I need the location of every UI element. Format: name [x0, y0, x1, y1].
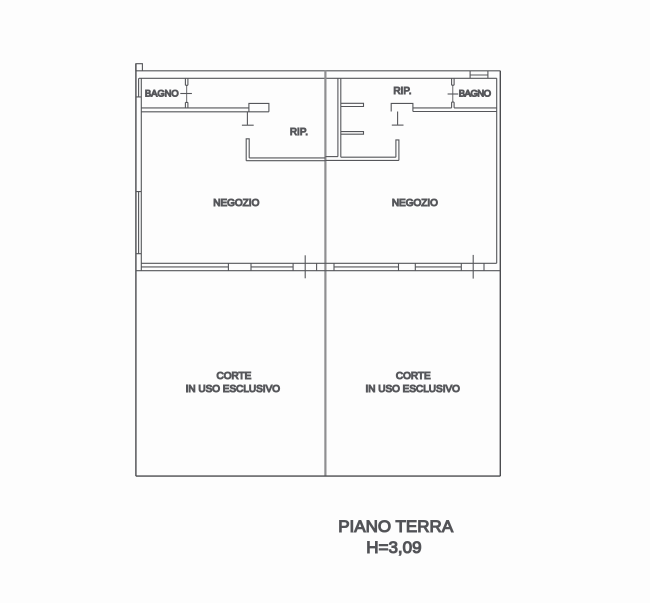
- svg-text:BAGNO: BAGNO: [145, 88, 179, 99]
- svg-text:NEGOZIO: NEGOZIO: [392, 198, 438, 209]
- svg-text:CORTE: CORTE: [216, 371, 251, 382]
- svg-text:RIP.: RIP.: [290, 127, 308, 138]
- svg-text:NEGOZIO: NEGOZIO: [213, 198, 259, 209]
- svg-text:RIP.: RIP.: [393, 86, 411, 97]
- svg-text:H=3,09: H=3,09: [366, 538, 421, 557]
- svg-text:IN USO ESCLUSIVO: IN USO ESCLUSIVO: [186, 384, 281, 395]
- svg-text:PIANO TERRA: PIANO TERRA: [338, 517, 454, 536]
- svg-text:BAGNO: BAGNO: [459, 88, 491, 99]
- svg-text:IN USO ESCLUSIVO: IN USO ESCLUSIVO: [365, 384, 460, 395]
- svg-text:CORTE: CORTE: [396, 371, 431, 382]
